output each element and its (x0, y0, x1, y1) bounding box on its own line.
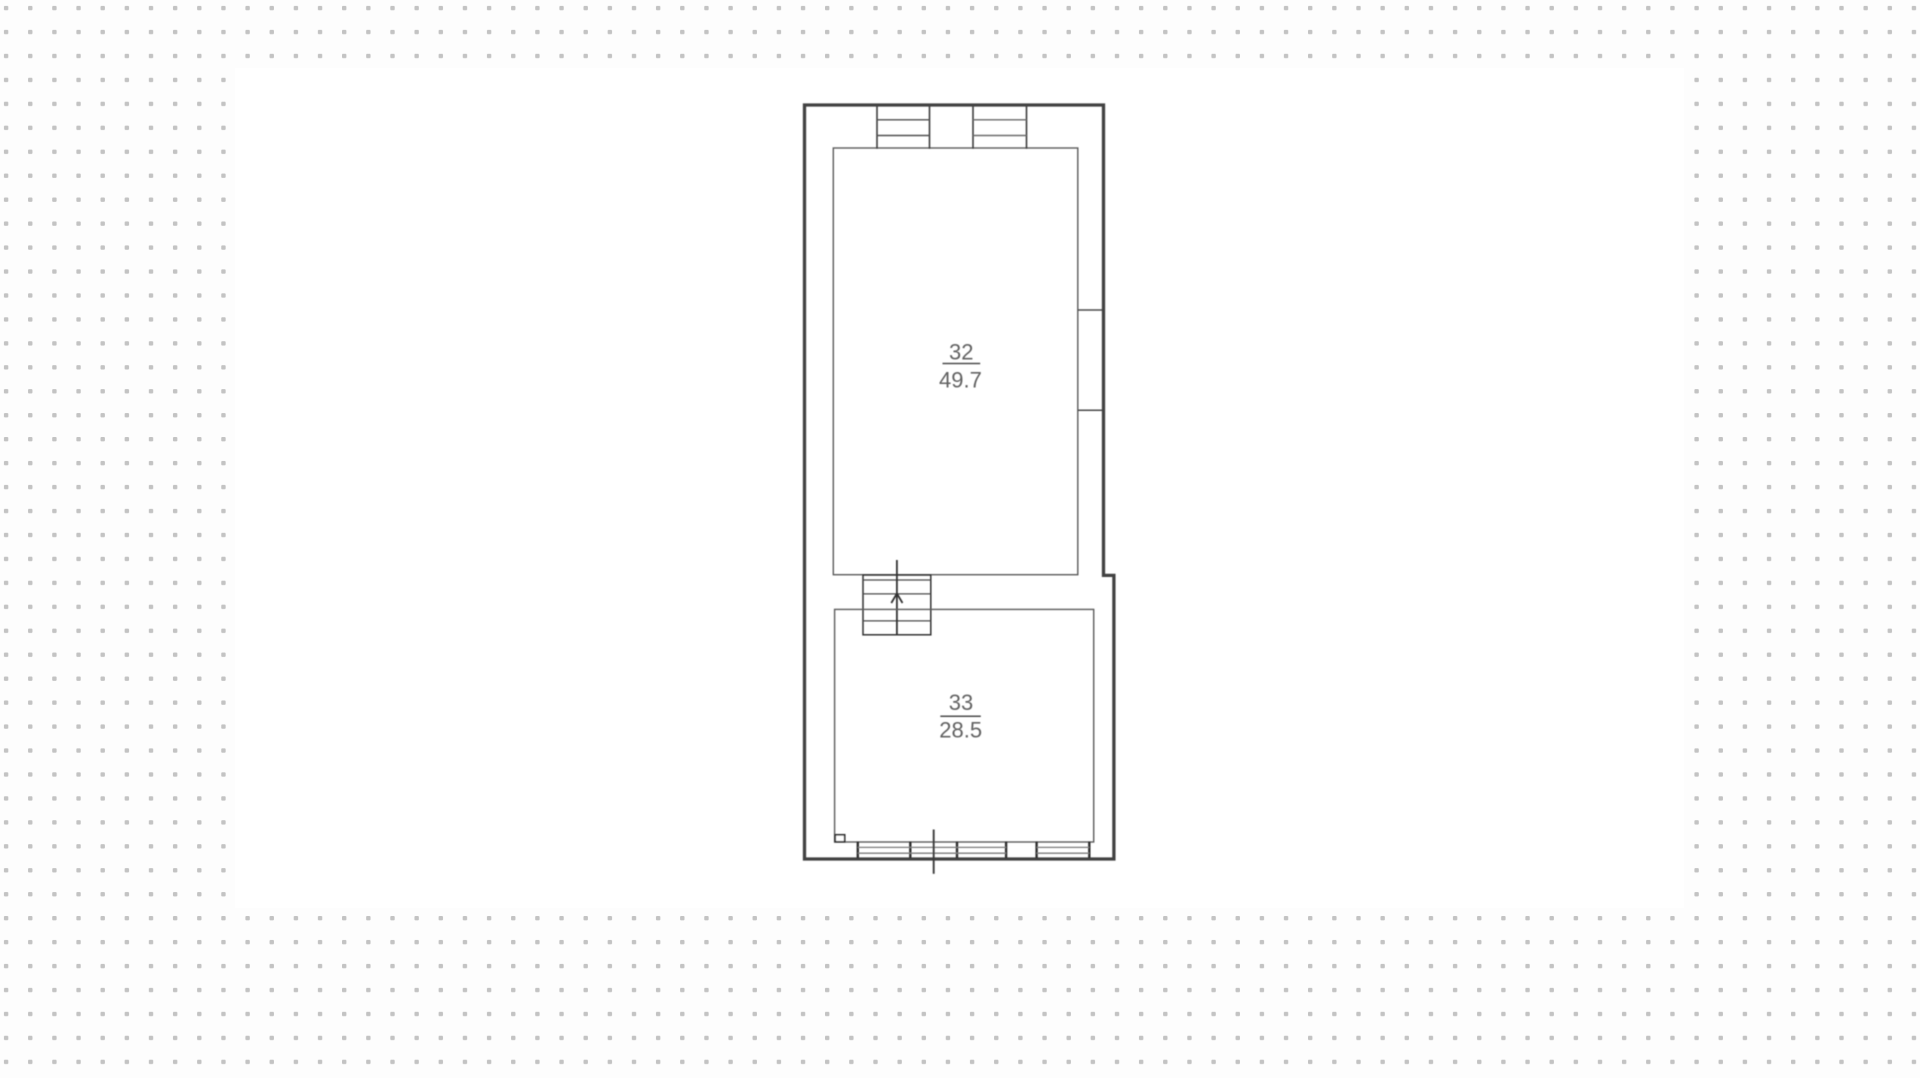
svg-text:49.7: 49.7 (939, 368, 982, 393)
svg-text:33: 33 (949, 690, 973, 715)
svg-text:28.5: 28.5 (939, 718, 982, 743)
svg-text:32: 32 (949, 340, 973, 365)
